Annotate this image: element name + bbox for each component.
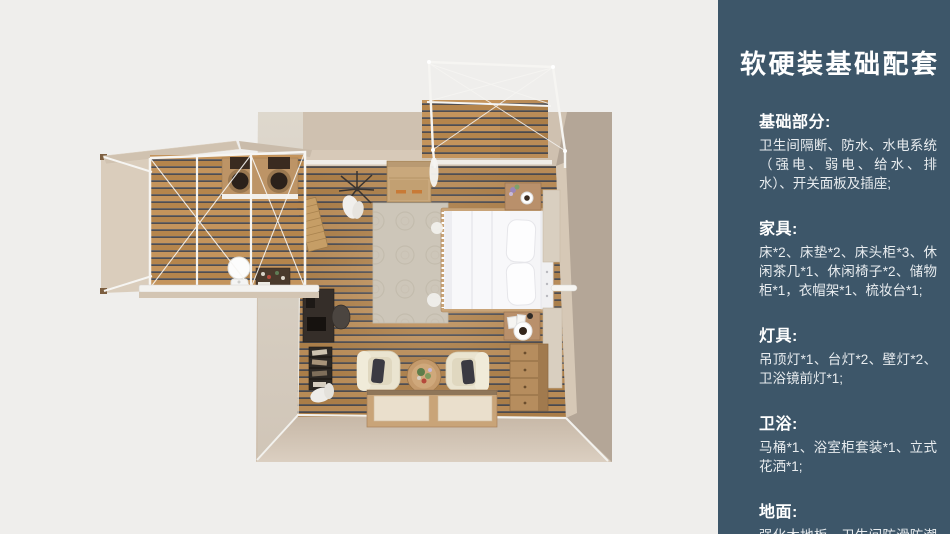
section-furniture: 家具: 床*2、床垫*2、床头柜*3、休闲茶几*1、休闲椅子*2、储物柜*1，衣… [759,215,937,300]
wall-lamp [551,285,577,291]
wing-beam [139,285,319,292]
floorplan-render [0,0,718,534]
section-heading: 家具: [759,215,937,239]
nightstand [505,183,541,210]
bathroom-wing [100,141,319,298]
section-basics: 基础部分: 卫生间隔断、防水、水电系统（强电、弱电、给水、排水）、开关面板及插座… [759,108,937,193]
section-heading: 基础部分: [759,108,937,132]
armchair [357,351,400,391]
nightstand [504,312,540,340]
pillow [506,219,536,262]
pillow [506,262,536,305]
garment [324,383,334,399]
section-body: 马桶*1、浴室柜套装*1、立式花洒*1; [759,438,937,476]
section-heading: 卫浴: [759,410,937,434]
armchair [446,352,489,392]
section-body: 床*2、床垫*2、床头柜*3、休闲茶几*1、休闲椅子*2、储物柜*1，衣帽架*1… [759,243,937,300]
section-bathroom: 卫浴: 马桶*1、浴室柜套装*1、立式花洒*1; [759,410,937,476]
section-lighting: 灯具: 吊顶灯*1、台灯*2、壁灯*2、卫浴镜前灯*1; [759,322,937,388]
page: 软硬装基础配套 基础部分: 卫生间隔断、防水、水电系统（强电、弱电、给水、排水）… [0,0,950,534]
canopy-deck [422,60,567,168]
section-body: 卫生间隔断、防水、水电系统（强电、弱电、给水、排水）、开关面板及插座; [759,136,937,193]
floorplan-panel [0,0,718,534]
leaning-mirror [543,190,560,262]
tea-table [407,359,441,393]
side-deck [101,151,152,293]
storage-cabinet [387,161,431,202]
section-flooring: 地面: 强化木地板、卫生间防滑防潮石塑板; [759,498,937,534]
office-chair [332,305,350,329]
floor-mats [367,390,497,427]
section-heading: 地面: [759,498,937,522]
section-body: 强化木地板、卫生间防滑防潮石塑板; [759,526,937,534]
dresser [510,344,548,411]
bed [427,208,554,312]
info-sidebar: 软硬装基础配套 基础部分: 卫生间隔断、防水、水电系统（强电、弱电、给水、排水）… [718,0,950,534]
section-body: 吊顶灯*1、台灯*2、壁灯*2、卫浴镜前灯*1; [759,350,937,388]
section-heading: 灯具: [759,322,937,346]
sidebar-title: 软硬装基础配套 [740,44,937,81]
